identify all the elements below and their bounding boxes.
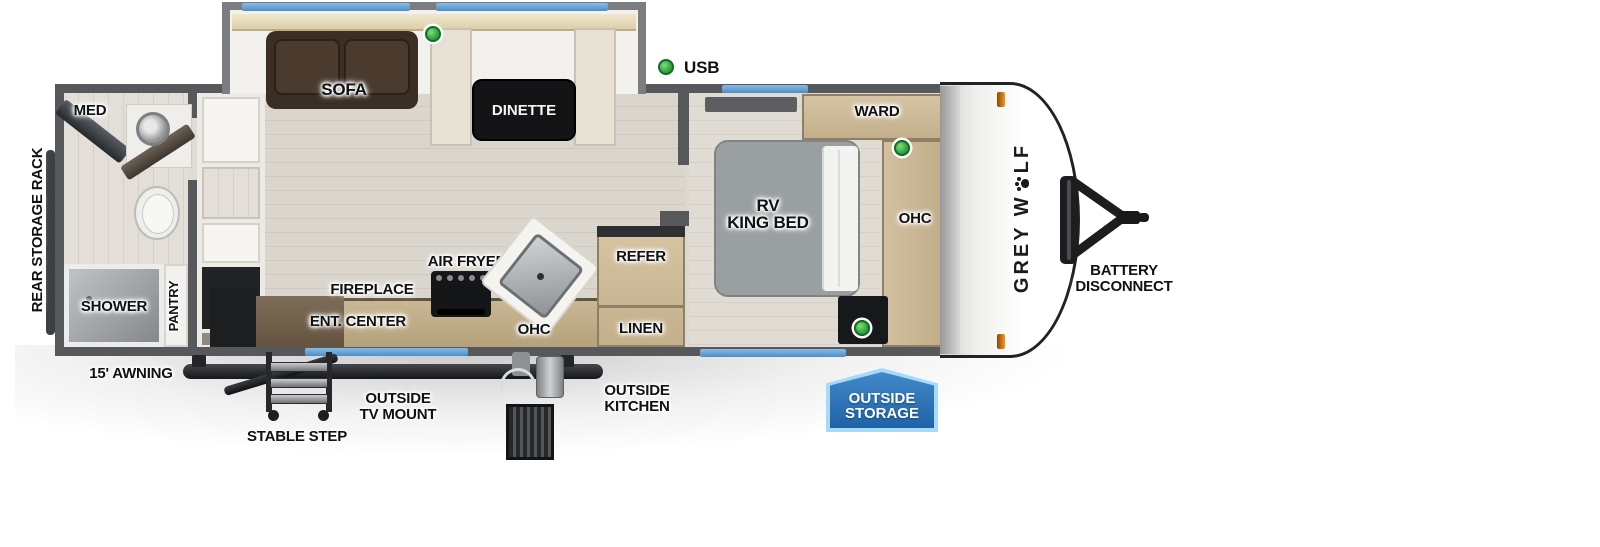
step-tread [270, 394, 328, 404]
ent-center-tv [210, 288, 258, 347]
step-wheel [268, 410, 279, 421]
med-label: MED [64, 103, 116, 118]
shower-label: SHOWER [72, 299, 156, 314]
usb-legend-label: USB [684, 59, 724, 76]
dinette-label: DINETTE [477, 102, 571, 119]
floorplan-canvas: REAR STORAGE RACK MED SHOWER PANTRY FIRE… [0, 0, 1600, 547]
marker-light-top [997, 92, 1005, 107]
marker-light-bottom [997, 334, 1005, 349]
refer-label: REFER [606, 249, 676, 264]
refer-divider [599, 305, 683, 308]
awning-label: 15' AWNING [81, 366, 181, 381]
range-handle [437, 309, 485, 315]
outside-kitchen-canister [536, 356, 564, 398]
toilet-seat [142, 194, 174, 234]
hitch-tongue [1058, 172, 1150, 268]
open-shelf [202, 167, 260, 219]
bedroom-wall-stub [660, 211, 689, 226]
bed-label-line2: KING BED [718, 214, 818, 231]
ohc-bedroom-cabinet [882, 140, 948, 347]
linen-label: LINEN [606, 321, 676, 336]
dinette-bench-left [430, 28, 472, 146]
outside-storage-label-line2: STORAGE [845, 406, 919, 422]
usb-port-dot-nightstand [854, 320, 870, 336]
bedroom-overhead-strip [705, 97, 797, 112]
window-slideout-left [242, 3, 410, 11]
brand-text-part1: GREY W [1011, 194, 1034, 293]
fireplace-label: FIREPLACE [322, 282, 422, 297]
window-bedroom-bottom [700, 349, 846, 357]
brand-text-part2: LF [1011, 143, 1034, 173]
bedroom-divider-wall [678, 93, 689, 165]
sink-faucet [537, 273, 544, 280]
window-slideout-right [436, 3, 608, 11]
tv-mount-label-line2: TV MOUNT [348, 407, 448, 422]
range-knob [436, 275, 442, 281]
ohc-bedroom-label: OHC [885, 211, 945, 226]
outside-griddle [506, 404, 554, 460]
stable-step-label: STABLE STEP [237, 429, 357, 444]
paw-icon [1014, 175, 1030, 192]
pantry-label: PANTRY [167, 271, 187, 341]
dinette-bench-right [574, 28, 616, 146]
entry-steps [266, 352, 332, 422]
front-cap-inner-edge [940, 86, 960, 354]
cabinet-mid [202, 223, 260, 263]
range-knob [458, 275, 464, 281]
window-bedroom-top [722, 85, 808, 93]
step-tread [270, 362, 328, 372]
battery-disconnect-label-line2: DISCONNECT [1062, 279, 1186, 294]
rear-storage-rack-label: REAR STORAGE RACK [30, 145, 50, 315]
sofa-label: SOFA [304, 81, 384, 98]
outside-storage-label-line1: OUTSIDE [849, 391, 916, 407]
range-knob [447, 275, 453, 281]
bed-sheet-fold [838, 150, 840, 287]
outside-kitchen-label-line2: KITCHEN [587, 399, 687, 414]
brand-logo: GREY W LF [1005, 118, 1039, 318]
cabinet-upper [202, 97, 260, 163]
bed-label-line1: RV [718, 197, 818, 214]
refer-top [597, 226, 685, 237]
step-tread [270, 378, 328, 388]
usb-port-dot-ward [894, 140, 910, 156]
ward-label: WARD [842, 104, 912, 119]
usb-legend-dot [658, 59, 674, 75]
outside-storage-badge-face: OUTSIDE STORAGE [830, 372, 934, 428]
tv-mount-label-line1: OUTSIDE [348, 391, 448, 406]
usb-port-dot-slideout [425, 26, 441, 42]
ent-center-label: ENT. CENTER [303, 314, 413, 329]
step-wheel [318, 410, 329, 421]
battery-disconnect-label-line1: BATTERY [1062, 263, 1186, 278]
ohc-kitchen-label: OHC [504, 322, 564, 337]
outside-kitchen-label-line1: OUTSIDE [587, 383, 687, 398]
bath-sink [136, 112, 170, 146]
range-knob [469, 275, 475, 281]
bed-sheet [822, 146, 858, 291]
awning-mount [192, 355, 206, 367]
